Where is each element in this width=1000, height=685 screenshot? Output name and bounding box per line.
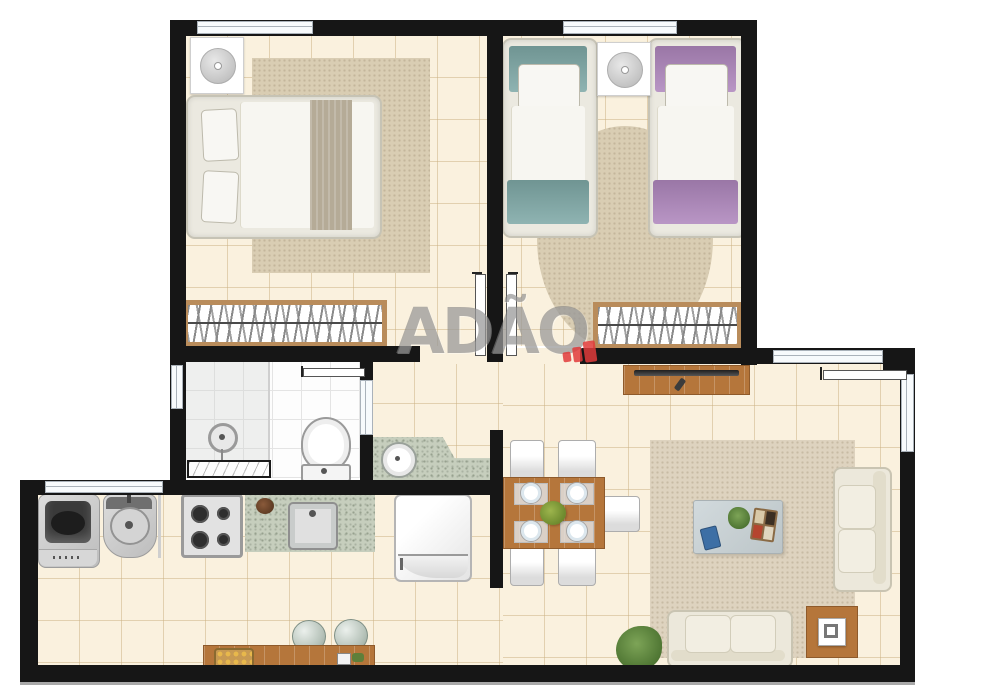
side-table xyxy=(806,606,858,658)
nightstand xyxy=(597,42,651,96)
floor-plant-icon xyxy=(616,626,662,670)
single-bed-lilac xyxy=(648,38,747,238)
living-side-window xyxy=(901,374,914,452)
dining-chair xyxy=(558,440,596,480)
plate xyxy=(566,520,588,542)
service-divider xyxy=(158,494,161,558)
sink-faucet xyxy=(309,510,316,517)
bathroom-door-opening xyxy=(360,380,373,435)
double-bed xyxy=(186,95,382,239)
pillow xyxy=(201,108,240,162)
sofa-cushion xyxy=(685,615,731,653)
pillow xyxy=(665,64,728,110)
wall-bath-right-b xyxy=(360,435,373,483)
burner xyxy=(191,531,209,549)
sofa-cushion xyxy=(730,615,776,653)
plate xyxy=(520,482,542,504)
sofa-two-seat-right xyxy=(833,467,892,592)
toilet-flush-dot xyxy=(321,468,327,474)
side-lamp-shade xyxy=(824,624,838,638)
tv-rack xyxy=(623,365,750,395)
wall-mid-left xyxy=(170,346,420,362)
wardrobe-rail xyxy=(188,322,382,324)
stove xyxy=(181,494,243,558)
service-window xyxy=(45,481,163,493)
sofa-cushion xyxy=(838,485,876,529)
fruit-bowl xyxy=(540,501,566,525)
dining-chair xyxy=(510,546,544,586)
washer-drum xyxy=(45,501,91,543)
bedroom1-door-handle xyxy=(472,272,482,274)
bathroom-window xyxy=(171,365,183,409)
dining-chair xyxy=(602,496,640,532)
single-bed-teal xyxy=(502,38,598,238)
blanket-teal xyxy=(507,180,589,224)
wall-left-kitchen xyxy=(20,480,38,682)
entry-door-handle xyxy=(820,367,822,380)
duvet xyxy=(511,106,585,184)
sofa-two-seat-bottom xyxy=(667,610,793,668)
tank-drain xyxy=(125,521,133,529)
washing-machine xyxy=(38,494,100,568)
dining-chair xyxy=(558,546,596,586)
table-plant-icon xyxy=(728,507,750,529)
bedroom1-window xyxy=(197,21,313,34)
bench-items xyxy=(337,653,351,665)
pillow xyxy=(518,64,580,110)
watermark: ADÃO xyxy=(396,300,587,363)
bedroom2-window xyxy=(563,21,677,34)
entry-door xyxy=(823,370,907,380)
watermark-logo-bar xyxy=(562,351,571,362)
remote-icon xyxy=(674,377,686,391)
sofa-cushion xyxy=(838,529,876,573)
laundry-tank xyxy=(103,494,157,558)
wardrobe-rail xyxy=(598,324,737,326)
toilet-bowl xyxy=(301,417,351,471)
entry-opening-window xyxy=(773,350,883,363)
bathroom-door-handle xyxy=(301,366,303,377)
washer-drum-opening xyxy=(51,511,85,535)
dining-chair xyxy=(510,440,544,480)
vanity-faucet xyxy=(395,456,400,461)
wardrobe xyxy=(183,300,387,347)
shower-head-dot xyxy=(219,434,225,440)
plate xyxy=(520,520,542,542)
duvet xyxy=(657,106,734,184)
plate xyxy=(566,482,588,504)
kitchen-sink xyxy=(288,502,338,550)
nightstand xyxy=(190,37,244,94)
pillow xyxy=(201,170,240,224)
blanket-lilac xyxy=(653,180,738,224)
apartment-floor-plan: ADÃO xyxy=(0,0,1000,685)
bench-greens xyxy=(352,653,364,662)
fridge-door xyxy=(398,554,468,578)
counter-plant-icon xyxy=(256,498,274,514)
dining-table xyxy=(503,477,605,549)
shower-bench xyxy=(187,460,271,478)
wall-bottom xyxy=(20,665,915,682)
burner xyxy=(217,507,230,520)
burner xyxy=(217,533,230,546)
bed-runner xyxy=(310,100,352,230)
washer-control-panel xyxy=(39,549,97,566)
wardrobe xyxy=(593,302,742,349)
coffee-table xyxy=(693,500,783,554)
bathroom-door xyxy=(303,368,365,377)
wall-partition-dining xyxy=(490,430,503,588)
watermark-text: ADÃO xyxy=(396,295,587,368)
tv-icon xyxy=(634,370,739,376)
refrigerator xyxy=(394,494,472,582)
duvet xyxy=(240,102,374,228)
bedroom2-door-handle xyxy=(508,272,518,274)
watermark-logo-bar xyxy=(572,346,583,362)
lamp-center-dot xyxy=(621,66,629,74)
fridge-handle xyxy=(400,558,403,570)
decor-tray xyxy=(750,507,778,542)
lamp-center-dot xyxy=(214,62,222,70)
burner xyxy=(191,505,209,523)
wall-right-bedroom2 xyxy=(741,20,757,365)
tablet-icon xyxy=(700,525,722,550)
wall-left-upper xyxy=(170,20,186,482)
